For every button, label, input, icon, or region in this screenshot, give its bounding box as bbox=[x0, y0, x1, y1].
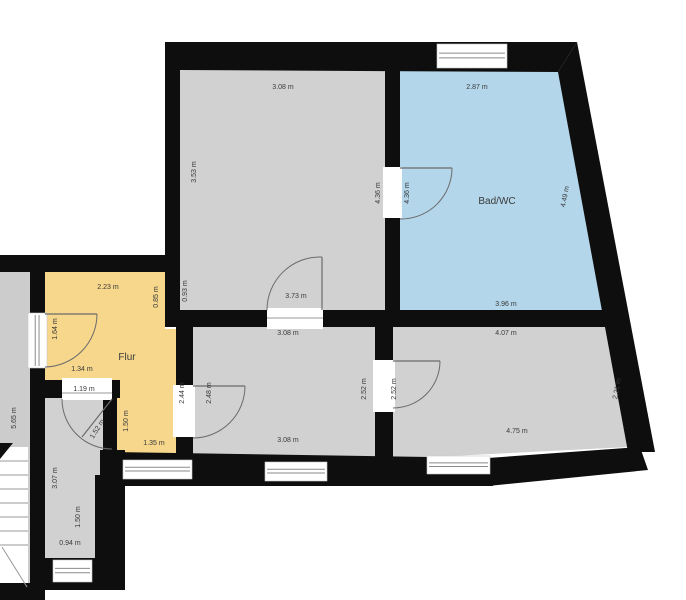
dimension-label: 0.85 m bbox=[153, 286, 160, 308]
wall-flur-top bbox=[0, 255, 180, 272]
room-bottom-right bbox=[393, 327, 629, 459]
room-top-left bbox=[180, 68, 385, 310]
dimension-label: 0.93 m bbox=[182, 280, 189, 302]
window-bottom-flur bbox=[123, 460, 192, 479]
wall-top bbox=[165, 42, 577, 72]
wall-bottom-left-corner bbox=[0, 583, 30, 600]
dimension-label: 5.65 m bbox=[11, 407, 18, 429]
dimension-label: 3.08 m bbox=[277, 330, 299, 337]
wall-left-top-room bbox=[165, 42, 180, 327]
dimension-label: 3.08 m bbox=[272, 84, 294, 91]
dimension-label: 1.64 m bbox=[52, 318, 59, 340]
dimension-label: 3.73 m bbox=[285, 293, 307, 300]
wall-flur-left bbox=[30, 255, 45, 600]
wall-horizontal-mid bbox=[165, 310, 624, 327]
dimension-label: 4.07 m bbox=[495, 330, 517, 337]
dimension-label: 2.23 m bbox=[97, 284, 119, 291]
stair-flight-area bbox=[0, 447, 28, 585]
window-small-room-bottom bbox=[53, 560, 92, 582]
window-flur-left bbox=[28, 313, 47, 368]
dimension-label: 4.36 m bbox=[404, 182, 411, 204]
dimension-label: 2.87 m bbox=[466, 84, 488, 91]
dimension-label: 3.08 m bbox=[277, 437, 299, 444]
dimension-label: 1.19 m bbox=[73, 386, 95, 393]
window-bottom-middle bbox=[265, 462, 327, 481]
dimension-label: 2.52 m bbox=[391, 378, 398, 400]
floor-plan: Bad/WCFlur3.08 m3.53 m0.93 m2.87 m4.36 m… bbox=[0, 0, 686, 600]
window-bottom-right bbox=[427, 456, 490, 474]
dimension-label: 1.50 m bbox=[75, 506, 82, 528]
dimension-label: 4.36 m bbox=[375, 182, 382, 204]
dimension-label: 4.75 m bbox=[506, 428, 528, 435]
dimension-label: 2.52 m bbox=[361, 378, 368, 400]
dimension-label: 1.50 m bbox=[123, 410, 130, 432]
dimension-label: 2.44 m bbox=[179, 382, 186, 404]
dimension-label: 3.53 m bbox=[191, 161, 198, 183]
dimension-label: 1.34 m bbox=[71, 366, 93, 373]
door-opening-top-rooms bbox=[383, 167, 402, 218]
dimension-label: 3.07 m bbox=[52, 467, 59, 489]
dimension-label: 2.48 m bbox=[206, 382, 213, 404]
dimension-label: 1.35 m bbox=[143, 440, 165, 447]
window-top-bath bbox=[437, 44, 507, 68]
room-label-bad-wc: Bad/WC bbox=[478, 196, 515, 207]
dimension-label: 0.94 m bbox=[59, 540, 81, 547]
room-label-flur: Flur bbox=[118, 352, 136, 363]
floor-plan-page: Bad/WCFlur3.08 m3.53 m0.93 m2.87 m4.36 m… bbox=[0, 0, 686, 600]
dimension-label: 3.96 m bbox=[495, 301, 517, 308]
